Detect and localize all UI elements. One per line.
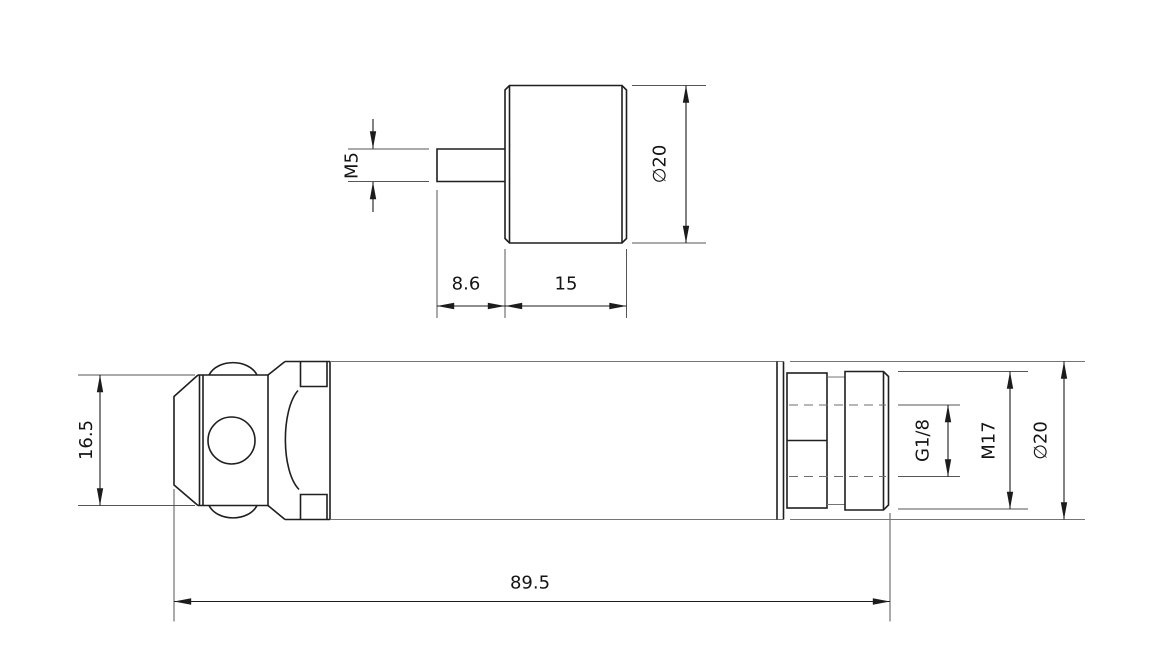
top-view: M5 8.6 15 ∅20 <box>342 86 707 319</box>
drawing-page: M5 8.6 15 ∅20 <box>0 0 1172 669</box>
dimension-stud-and-head-length: 8.6 15 <box>437 190 627 318</box>
connection-end <box>787 372 889 511</box>
dim-label-15: 15 <box>555 274 578 295</box>
dim-label-m5: M5 <box>342 152 363 179</box>
dim-label-89-5: 89.5 <box>510 573 550 594</box>
dim-label-16-5: 16.5 <box>76 420 97 460</box>
plug-head-outline <box>505 86 627 244</box>
dim-label-body-dia20: ∅20 <box>1031 421 1052 460</box>
dimension-overall-length: 89.5 <box>174 489 890 622</box>
plug-stud-outline <box>437 149 505 182</box>
dimension-m5: M5 <box>342 119 430 212</box>
nose-outline <box>174 375 198 506</box>
hex-collar <box>268 362 330 520</box>
dim-label-8-6: 8.6 <box>452 274 481 295</box>
dim-label-head-dia20: ∅20 <box>650 145 671 184</box>
dim-label-m17: M17 <box>979 421 1000 459</box>
thread-outline <box>845 372 889 511</box>
technical-drawing: M5 8.6 15 ∅20 <box>0 0 1172 669</box>
dim-label-g1-8: G1/8 <box>913 419 934 462</box>
process-connection <box>174 363 268 518</box>
hex-corner-arc-top <box>209 363 257 375</box>
side-view: 16.5 89.5 G1/8 M17 ∅20 <box>76 362 1085 622</box>
sensor-body <box>330 362 784 520</box>
collar-notch-bottom <box>301 495 328 520</box>
hex-corner-arc-bottom <box>209 506 257 518</box>
dimension-head-diameter: ∅20 <box>632 86 706 244</box>
collar-notch-top <box>301 362 328 387</box>
dimension-port-thread: G1/8 <box>898 405 960 477</box>
dimension-body-diameter: ∅20 <box>790 362 1085 520</box>
cross-hole <box>208 417 255 464</box>
collar-flat-arc <box>285 391 299 490</box>
